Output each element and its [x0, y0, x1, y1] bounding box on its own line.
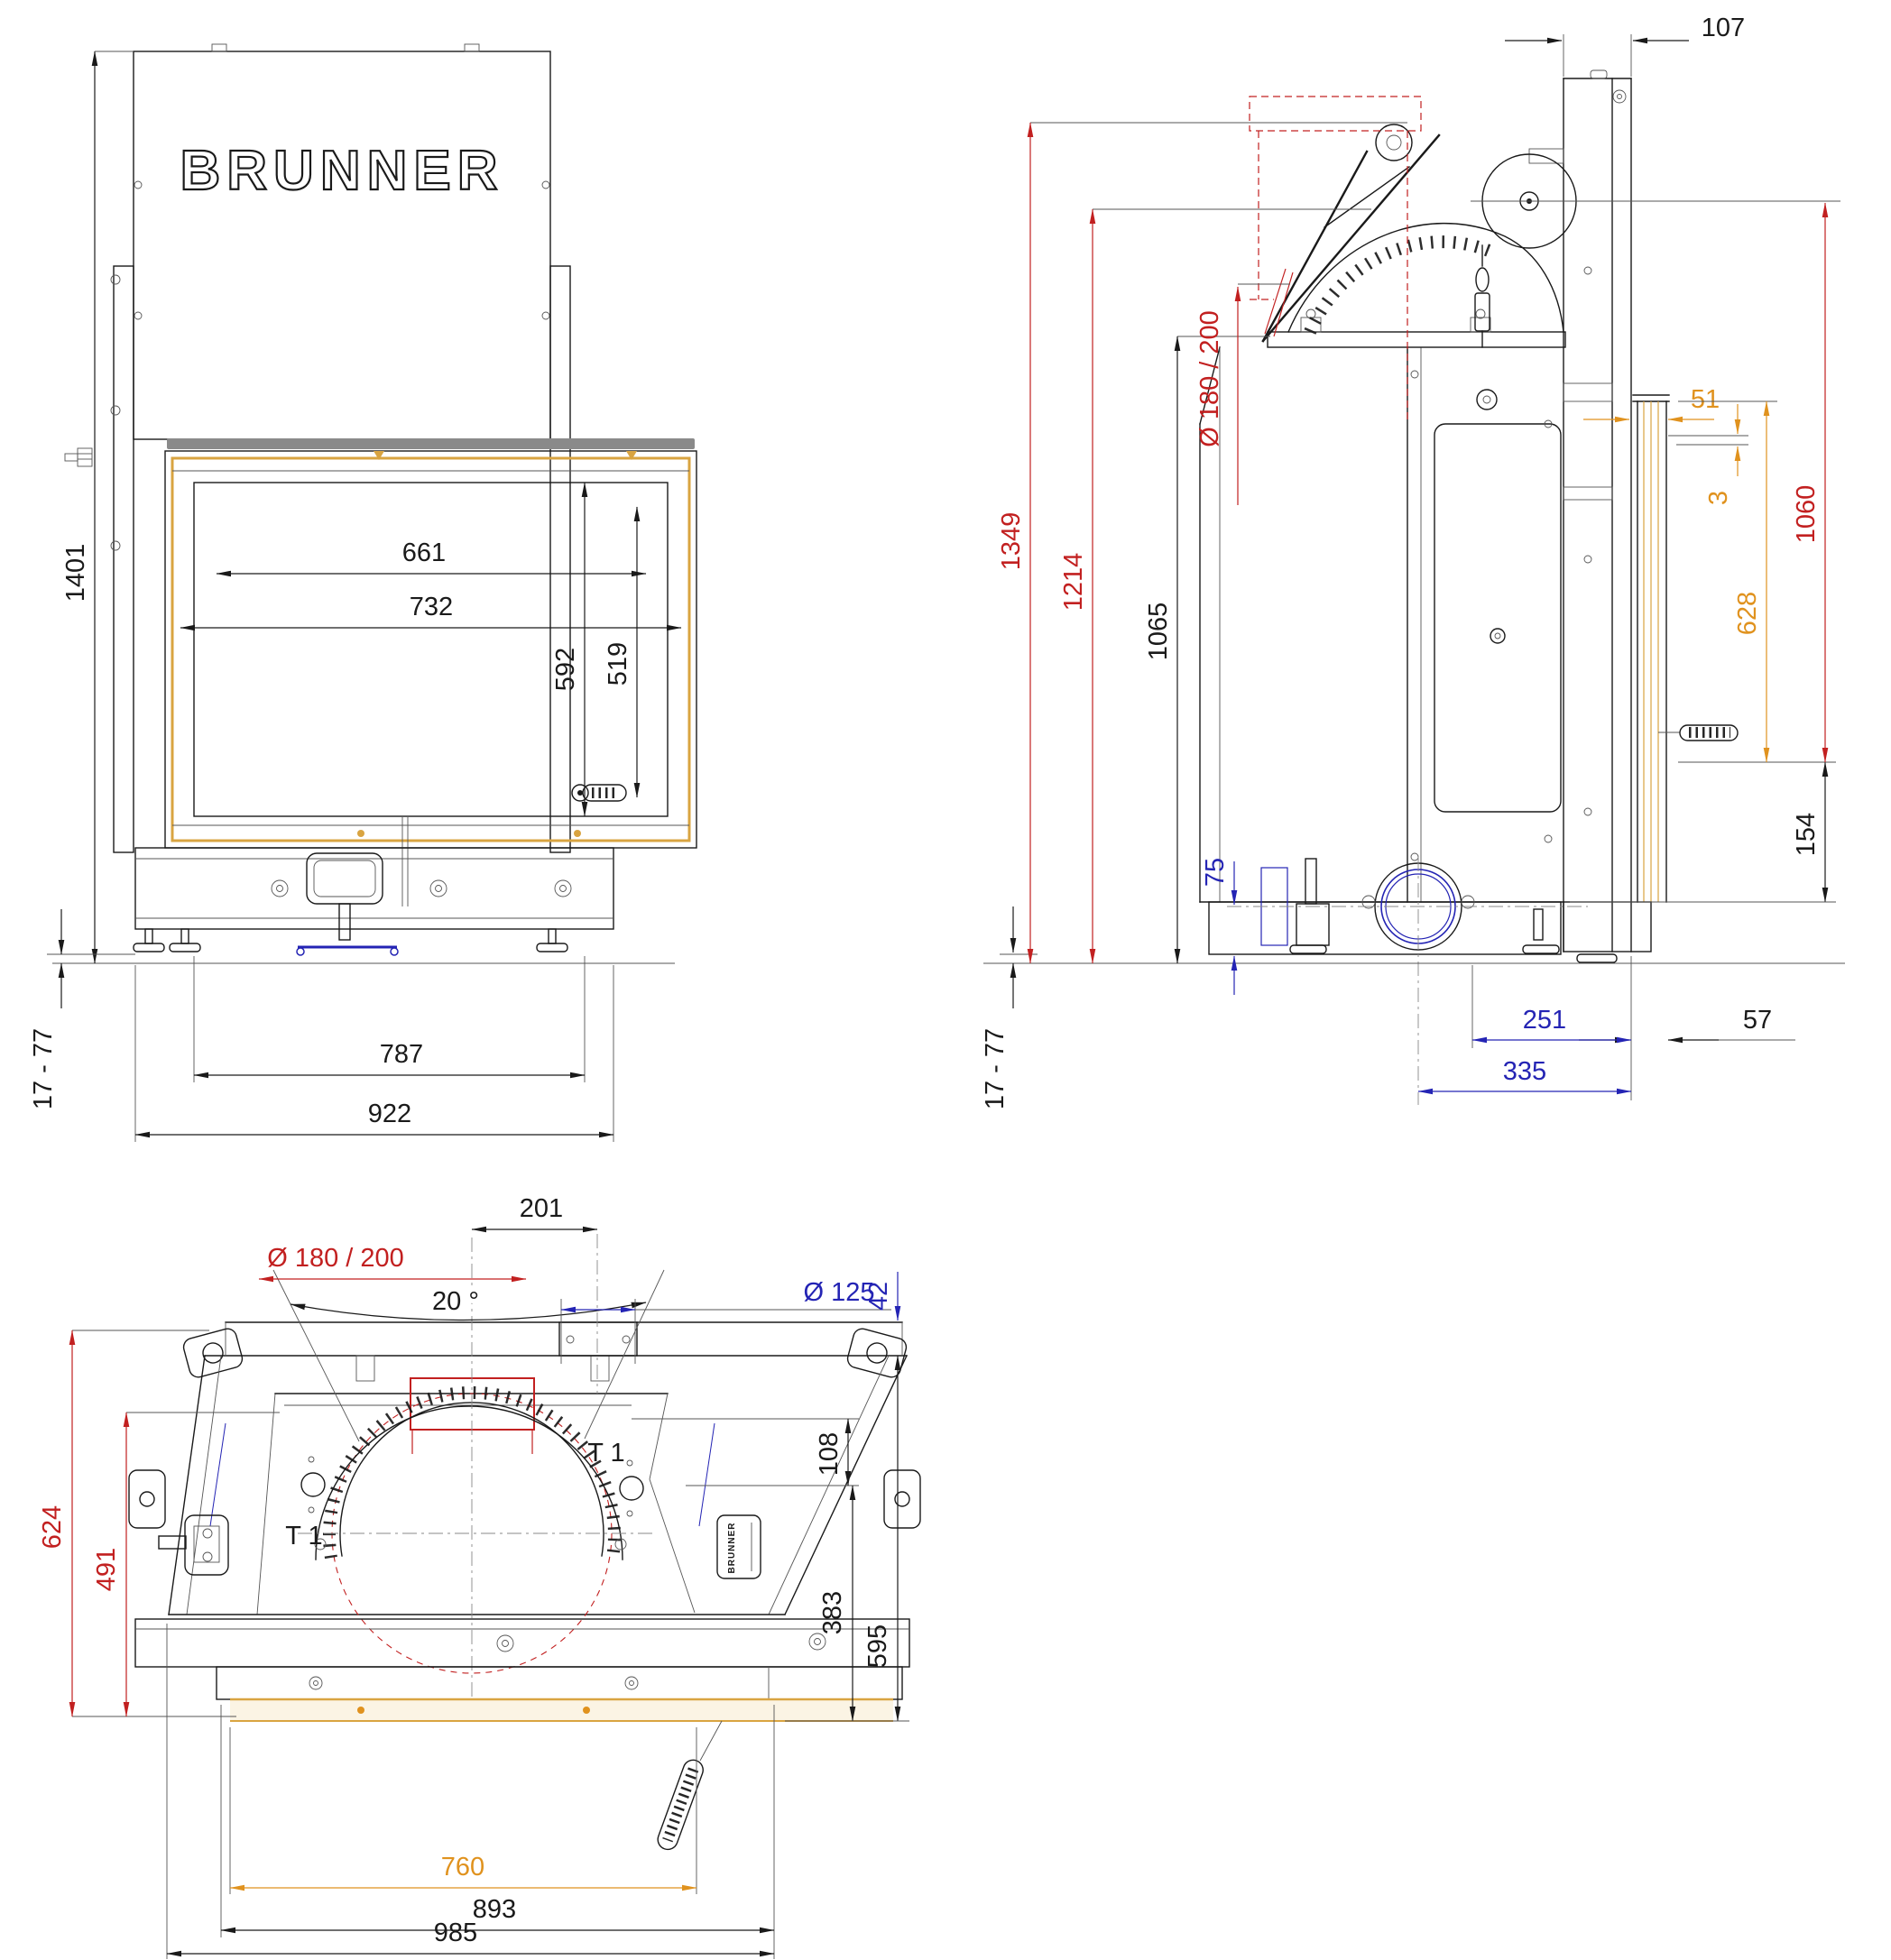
handle-spring-icon	[655, 1721, 722, 1852]
dim-front-anchor-span: 787	[380, 1040, 423, 1069]
side-view: 107 1065 154 57 17 - 77 1349 1214	[981, 14, 1845, 1109]
dim-top-side-angle: 20 °	[432, 1287, 479, 1316]
dim-top-duct-depth: 108	[815, 1432, 844, 1476]
dim-side-outlet-to-front: 251	[1523, 1006, 1566, 1035]
front-view: BRUNNER	[29, 44, 696, 1142]
front-dimensions: 1401 661 732 592 519 17 - 77 787 922	[29, 51, 681, 1142]
glass-band-fill	[230, 1699, 893, 1721]
dim-top-body-depth: 595	[863, 1624, 892, 1668]
dim-side-glass-height: 628	[1733, 592, 1762, 635]
dim-top-flue-diameter: Ø 180 / 200	[267, 1244, 404, 1273]
side-lug	[129, 1470, 165, 1528]
dim-top-flue-offset: 201	[520, 1194, 563, 1223]
front-side-brackets	[65, 266, 570, 852]
top-front-frame	[135, 1619, 909, 1721]
top-view: T 1 T 1 BRUNNER	[38, 1194, 920, 1959]
corner-lug	[181, 1327, 244, 1379]
top-rail	[167, 438, 695, 449]
top-body: T 1 T 1 BRUNNER	[129, 1234, 920, 1852]
front-hood: BRUNNER	[134, 44, 550, 439]
dim-front-glass-height-inner: 519	[604, 642, 632, 686]
side-base	[1209, 857, 1651, 1105]
dim-front-base-width: 922	[368, 1100, 411, 1128]
dim-side-floor-gap: 17 - 77	[981, 1028, 1010, 1109]
rating-plate: BRUNNER	[717, 1515, 761, 1578]
dim-side-front-offset: 51	[1691, 385, 1720, 414]
dim-side-height-front: 1060	[1792, 485, 1821, 544]
dim-top-total-depth: 624	[38, 1505, 67, 1549]
dim-top-inner-depth: 491	[92, 1548, 121, 1591]
dim-side-front-lip: 57	[1743, 1006, 1772, 1035]
dim-front-glass-height-outer: 592	[551, 648, 580, 691]
front-base	[134, 848, 613, 955]
dim-top-back-gap: 42	[864, 1282, 893, 1311]
dim-side-height-max: 1349	[997, 512, 1026, 571]
side-lug	[884, 1470, 920, 1528]
dim-side-height-body: 1065	[1144, 603, 1173, 661]
top-dimensions-black: 201 20 ° 108 595 383 893 985	[167, 1194, 909, 1959]
dim-front-total-height: 1401	[61, 544, 90, 603]
side-door-glass	[1633, 395, 1738, 902]
label-t1-right: T 1	[587, 1439, 624, 1468]
dim-front-glass-width-inner: 661	[402, 538, 446, 567]
flue-pipe-dashed-outline	[1250, 97, 1421, 424]
damper-assembly	[1263, 124, 1564, 341]
dim-front-floor-gap: 17 - 77	[29, 1028, 58, 1109]
svg-text:BRUNNER: BRUNNER	[727, 1523, 737, 1574]
side-dimensions-blue: 75 251 335	[1201, 858, 1631, 1100]
glass-pane	[194, 483, 668, 816]
pulley-assembly	[1471, 149, 1840, 347]
top-dimensions-blue: Ø 125 42	[561, 1272, 898, 1364]
dim-top-glass-width: 760	[441, 1853, 484, 1882]
dim-front-glass-width-outer: 732	[410, 593, 453, 621]
dim-side-outlet-height: 75	[1201, 858, 1230, 887]
drawing-page: BRUNNER	[0, 0, 1891, 1960]
dim-top-frame-width: 893	[473, 1895, 516, 1924]
blue-guide-left	[210, 1423, 226, 1526]
door-glass-tan-strips	[1644, 401, 1658, 902]
dim-top-total-width: 985	[434, 1919, 477, 1947]
dim-side-top-depth: 107	[1702, 14, 1745, 42]
center-roller	[297, 853, 398, 955]
t1-sensor-left: T 1	[285, 1457, 325, 1551]
technical-drawing: BRUNNER	[0, 0, 1891, 1960]
dim-side-base-height: 154	[1792, 813, 1821, 856]
side-dimensions-red: 1349 1214 Ø 180 / 200 1060	[997, 123, 1836, 963]
label-t1-left: T 1	[285, 1522, 322, 1551]
top-dimensions-orange: 760	[230, 1727, 696, 1894]
dim-side-flue-diameter: Ø 180 / 200	[1195, 310, 1224, 447]
frame-dot	[357, 830, 364, 837]
damper-red-accent	[1265, 269, 1293, 336]
frame-dot	[574, 830, 581, 837]
dim-top-front-depth: 383	[818, 1591, 847, 1634]
side-dimensions-black: 107 1065 154 57 17 - 77	[981, 14, 1836, 1109]
dim-side-glass-gap: 3	[1704, 491, 1733, 505]
dim-side-outlet-center-to-front: 335	[1503, 1057, 1546, 1086]
door-spring-icon	[1658, 725, 1738, 741]
side-body	[1200, 70, 1631, 952]
door-handle-icon	[572, 785, 626, 801]
dim-side-height-damper: 1214	[1059, 553, 1088, 612]
blue-guide-right	[699, 1423, 715, 1526]
leveling-bolt-icon	[65, 448, 92, 466]
brand-logo: BRUNNER	[180, 140, 504, 202]
